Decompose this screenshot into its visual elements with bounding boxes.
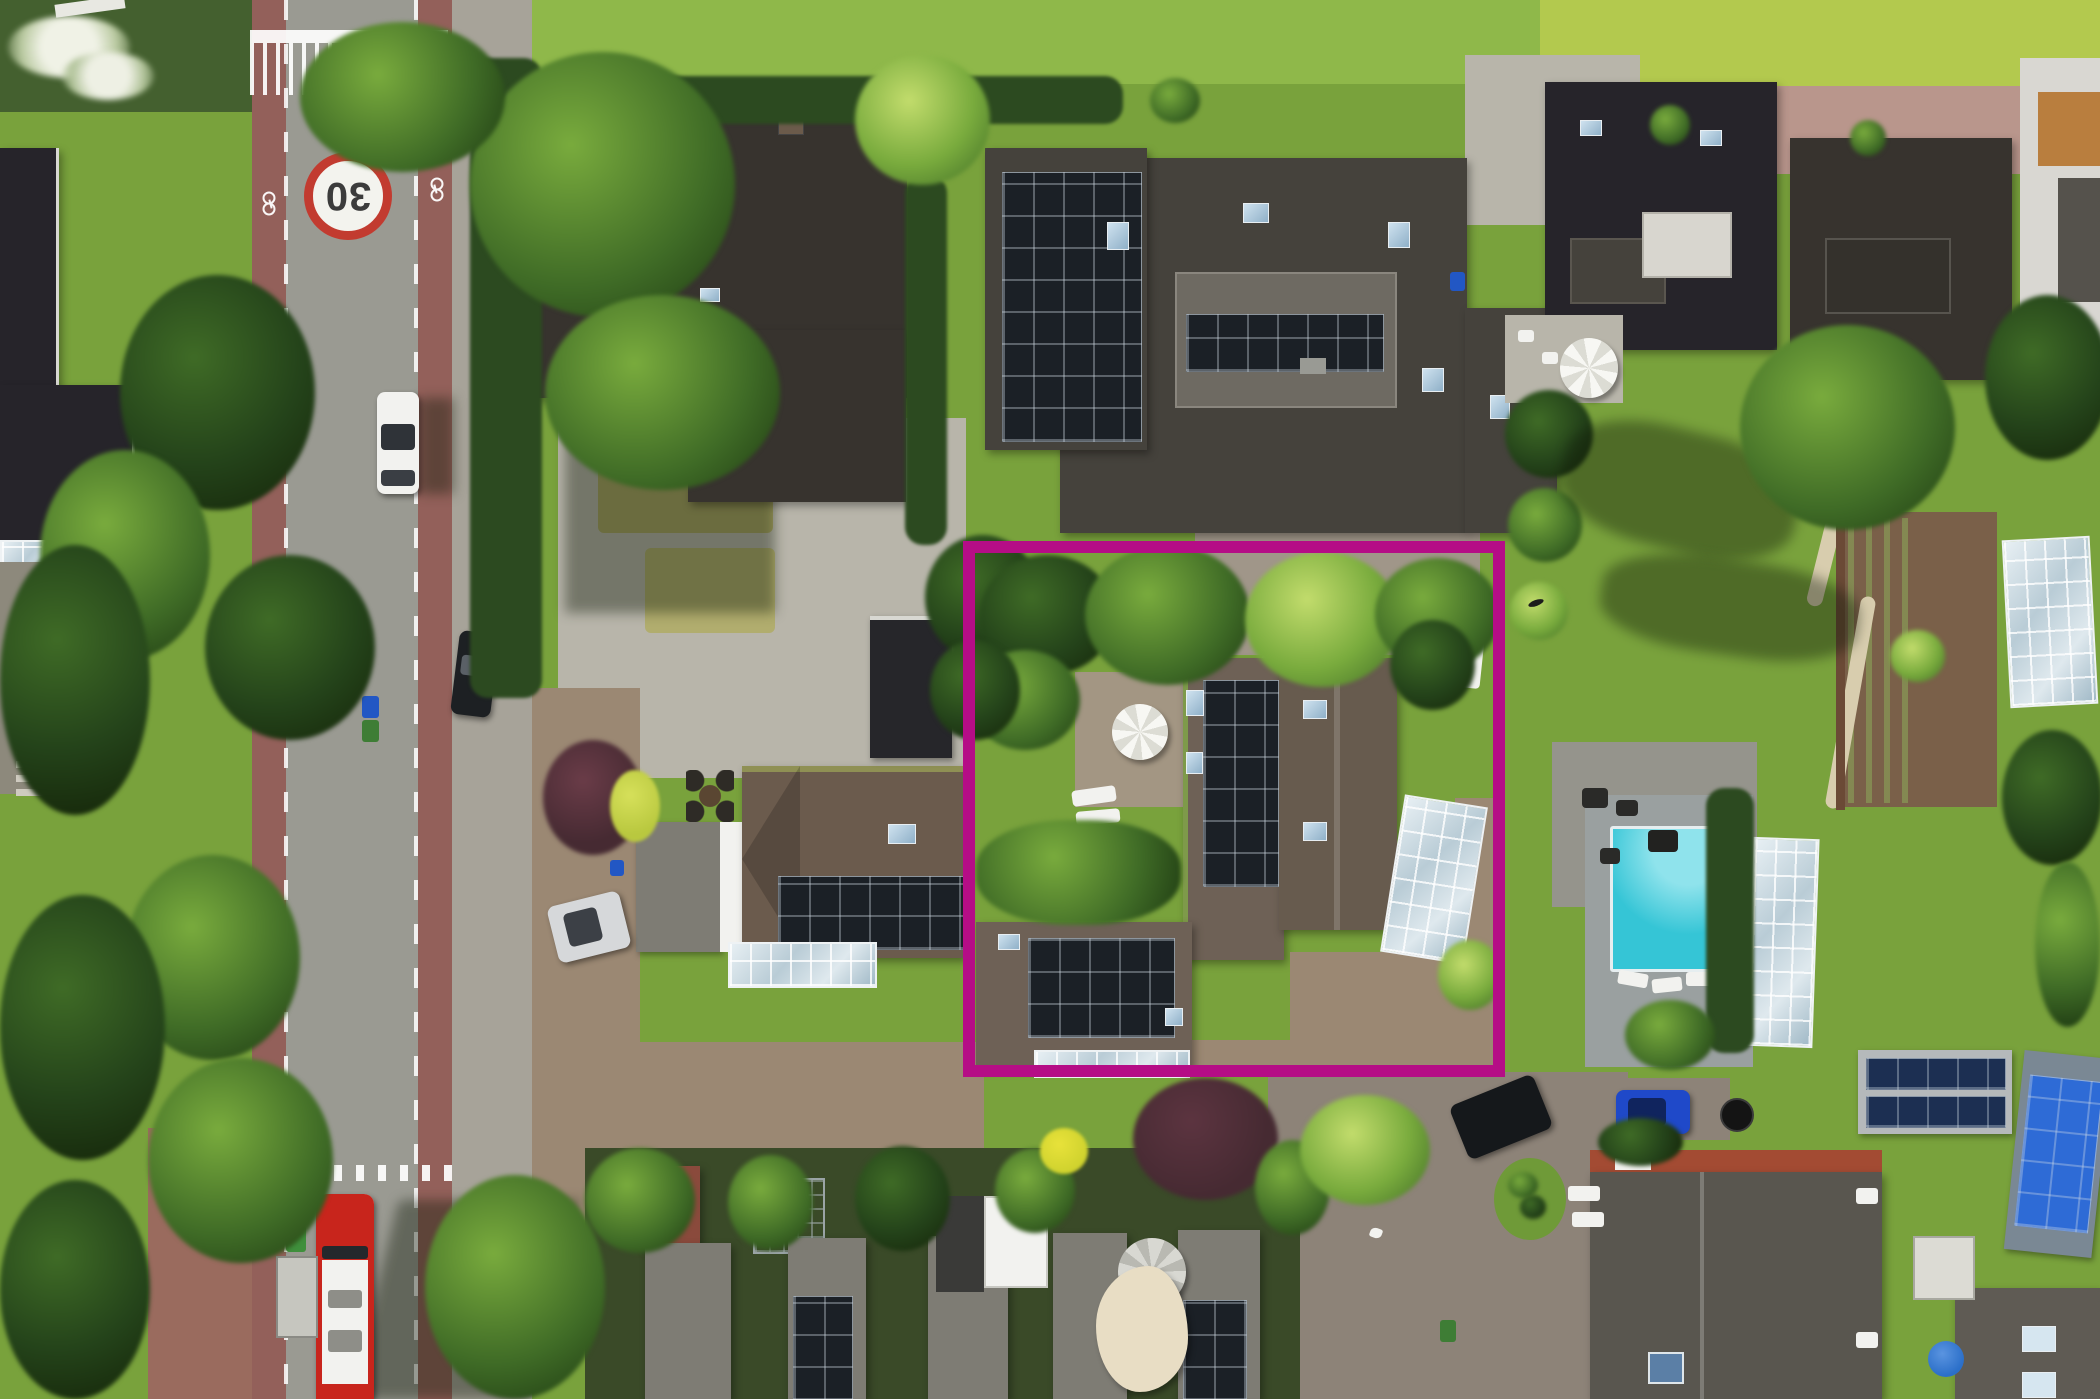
- tree-canopy: [470, 52, 735, 317]
- tree-canopy: [2035, 862, 2100, 1027]
- solar-panel-array: [1183, 1300, 1247, 1399]
- dormer: [1825, 238, 1951, 314]
- shade-sail: [1096, 1266, 1188, 1392]
- tree-canopy: [1985, 295, 2100, 460]
- lane-dash-right: [414, 0, 418, 1399]
- ac-unit: [1856, 1188, 1878, 1204]
- walkway-shrub: [1650, 105, 1690, 145]
- tree-canopy: [0, 545, 150, 815]
- tree-canopy: [545, 295, 780, 490]
- carport-roof: [636, 822, 722, 952]
- skylight: [1388, 222, 1410, 248]
- roof-section-dark: [2058, 178, 2100, 302]
- waste-bin-blue: [362, 696, 379, 718]
- tree-canopy: [1598, 1118, 1683, 1166]
- patio-furniture-dark: [1616, 800, 1638, 816]
- white-shed: [1913, 1236, 1975, 1300]
- tree-canopy: [148, 1058, 333, 1263]
- conservatory: [728, 942, 877, 988]
- bright-solar-array: [2014, 1075, 2100, 1234]
- patio-furniture-dark: [1648, 830, 1678, 852]
- highlight-box: [963, 541, 1505, 1077]
- garden-bush: [1890, 630, 1945, 682]
- tree-canopy: [0, 1180, 150, 1399]
- solar-panel-array: [778, 876, 966, 950]
- skylight: [1422, 368, 1444, 392]
- tree-canopy: [1740, 325, 1955, 530]
- hot-tub: [1720, 1098, 1754, 1132]
- tree-canopy: [728, 1155, 813, 1250]
- tree-canopy: [2002, 730, 2100, 865]
- skylight: [2022, 1326, 2056, 1352]
- tree-canopy: [855, 55, 990, 185]
- walkway-shrub: [1850, 120, 1886, 156]
- skylight: [2022, 1372, 2056, 1398]
- aerial-photo-scene: 30: [0, 0, 2100, 1399]
- waste-bin-blue: [1450, 272, 1465, 291]
- conservatory: [1746, 837, 1819, 1048]
- tree-canopy: [1300, 1095, 1430, 1205]
- bus-shelter: [276, 1256, 318, 1338]
- tree-canopy: [300, 22, 505, 172]
- house-roof-left-edge: [0, 148, 59, 402]
- topiary-bush: [1510, 582, 1568, 640]
- terraced-roof: [645, 1243, 731, 1399]
- greenhouse: [2002, 536, 2099, 708]
- bus-rear-red: [316, 1384, 374, 1399]
- house-roof-bottom-right: [1590, 1172, 1882, 1399]
- yellow-bush: [1040, 1128, 1088, 1174]
- tree-canopy: [0, 895, 165, 1160]
- blossom-bush: [62, 52, 154, 100]
- bus-windshield: [322, 1246, 368, 1259]
- patio-chair: [1542, 352, 1558, 364]
- bicycle-symbol-marking: [263, 192, 278, 216]
- outdoor-dining-set: [686, 770, 734, 822]
- ac-unit: [1856, 1332, 1878, 1348]
- hedge-pool-side: [1706, 788, 1754, 1053]
- solar-panel-row: [1866, 1096, 2006, 1128]
- car-shadow: [420, 398, 454, 494]
- blue-parasol: [1928, 1341, 1964, 1377]
- skylight: [1700, 130, 1722, 146]
- skylight: [1243, 203, 1269, 223]
- bed-shrub: [1520, 1195, 1546, 1219]
- skylight: [888, 824, 916, 844]
- solar-panel-array: [793, 1296, 853, 1399]
- skylight: [1107, 222, 1129, 250]
- roof-gable-line: [1700, 1172, 1704, 1399]
- bus-roof-hatch: [328, 1290, 362, 1308]
- cycle-lane-right: [418, 0, 452, 1399]
- white-dormer: [1642, 212, 1732, 278]
- hedge-villa-side: [905, 175, 947, 545]
- tree-canopy: [425, 1175, 605, 1399]
- car-rear-window: [381, 470, 415, 486]
- solar-panel-strip: [1186, 314, 1384, 372]
- garden-bench: [1568, 1186, 1600, 1201]
- tree-canopy: [205, 555, 375, 740]
- tree-canopy: [1625, 1000, 1715, 1070]
- patio-furniture-dark: [1600, 848, 1620, 864]
- waste-bin-green: [362, 720, 379, 742]
- white-parasol: [1560, 338, 1618, 398]
- garden-bench: [1572, 1212, 1604, 1227]
- solar-panel-row: [1866, 1058, 2006, 1090]
- roof-window-blue: [1648, 1352, 1684, 1384]
- yellow-bush: [610, 770, 660, 842]
- bicycle-symbol-marking: [429, 178, 444, 202]
- roof-vent: [1300, 358, 1326, 374]
- hedge-bush: [1150, 78, 1200, 123]
- solar-panel-array: [1002, 172, 1142, 442]
- skylight: [1580, 120, 1602, 136]
- bus-roof-hatch: [328, 1330, 362, 1352]
- bus-side-stripe: [368, 1260, 374, 1399]
- waste-bin-green: [1440, 1320, 1456, 1342]
- car-windshield: [381, 424, 415, 450]
- patio-chair: [1518, 330, 1534, 342]
- skylight: [700, 288, 720, 302]
- rooftop-terrace-orange: [2038, 92, 2100, 166]
- patio-furniture-dark: [1582, 788, 1608, 808]
- tree-canopy: [585, 1148, 695, 1253]
- tree-canopy: [855, 1146, 950, 1251]
- waste-bin-blue: [610, 860, 624, 876]
